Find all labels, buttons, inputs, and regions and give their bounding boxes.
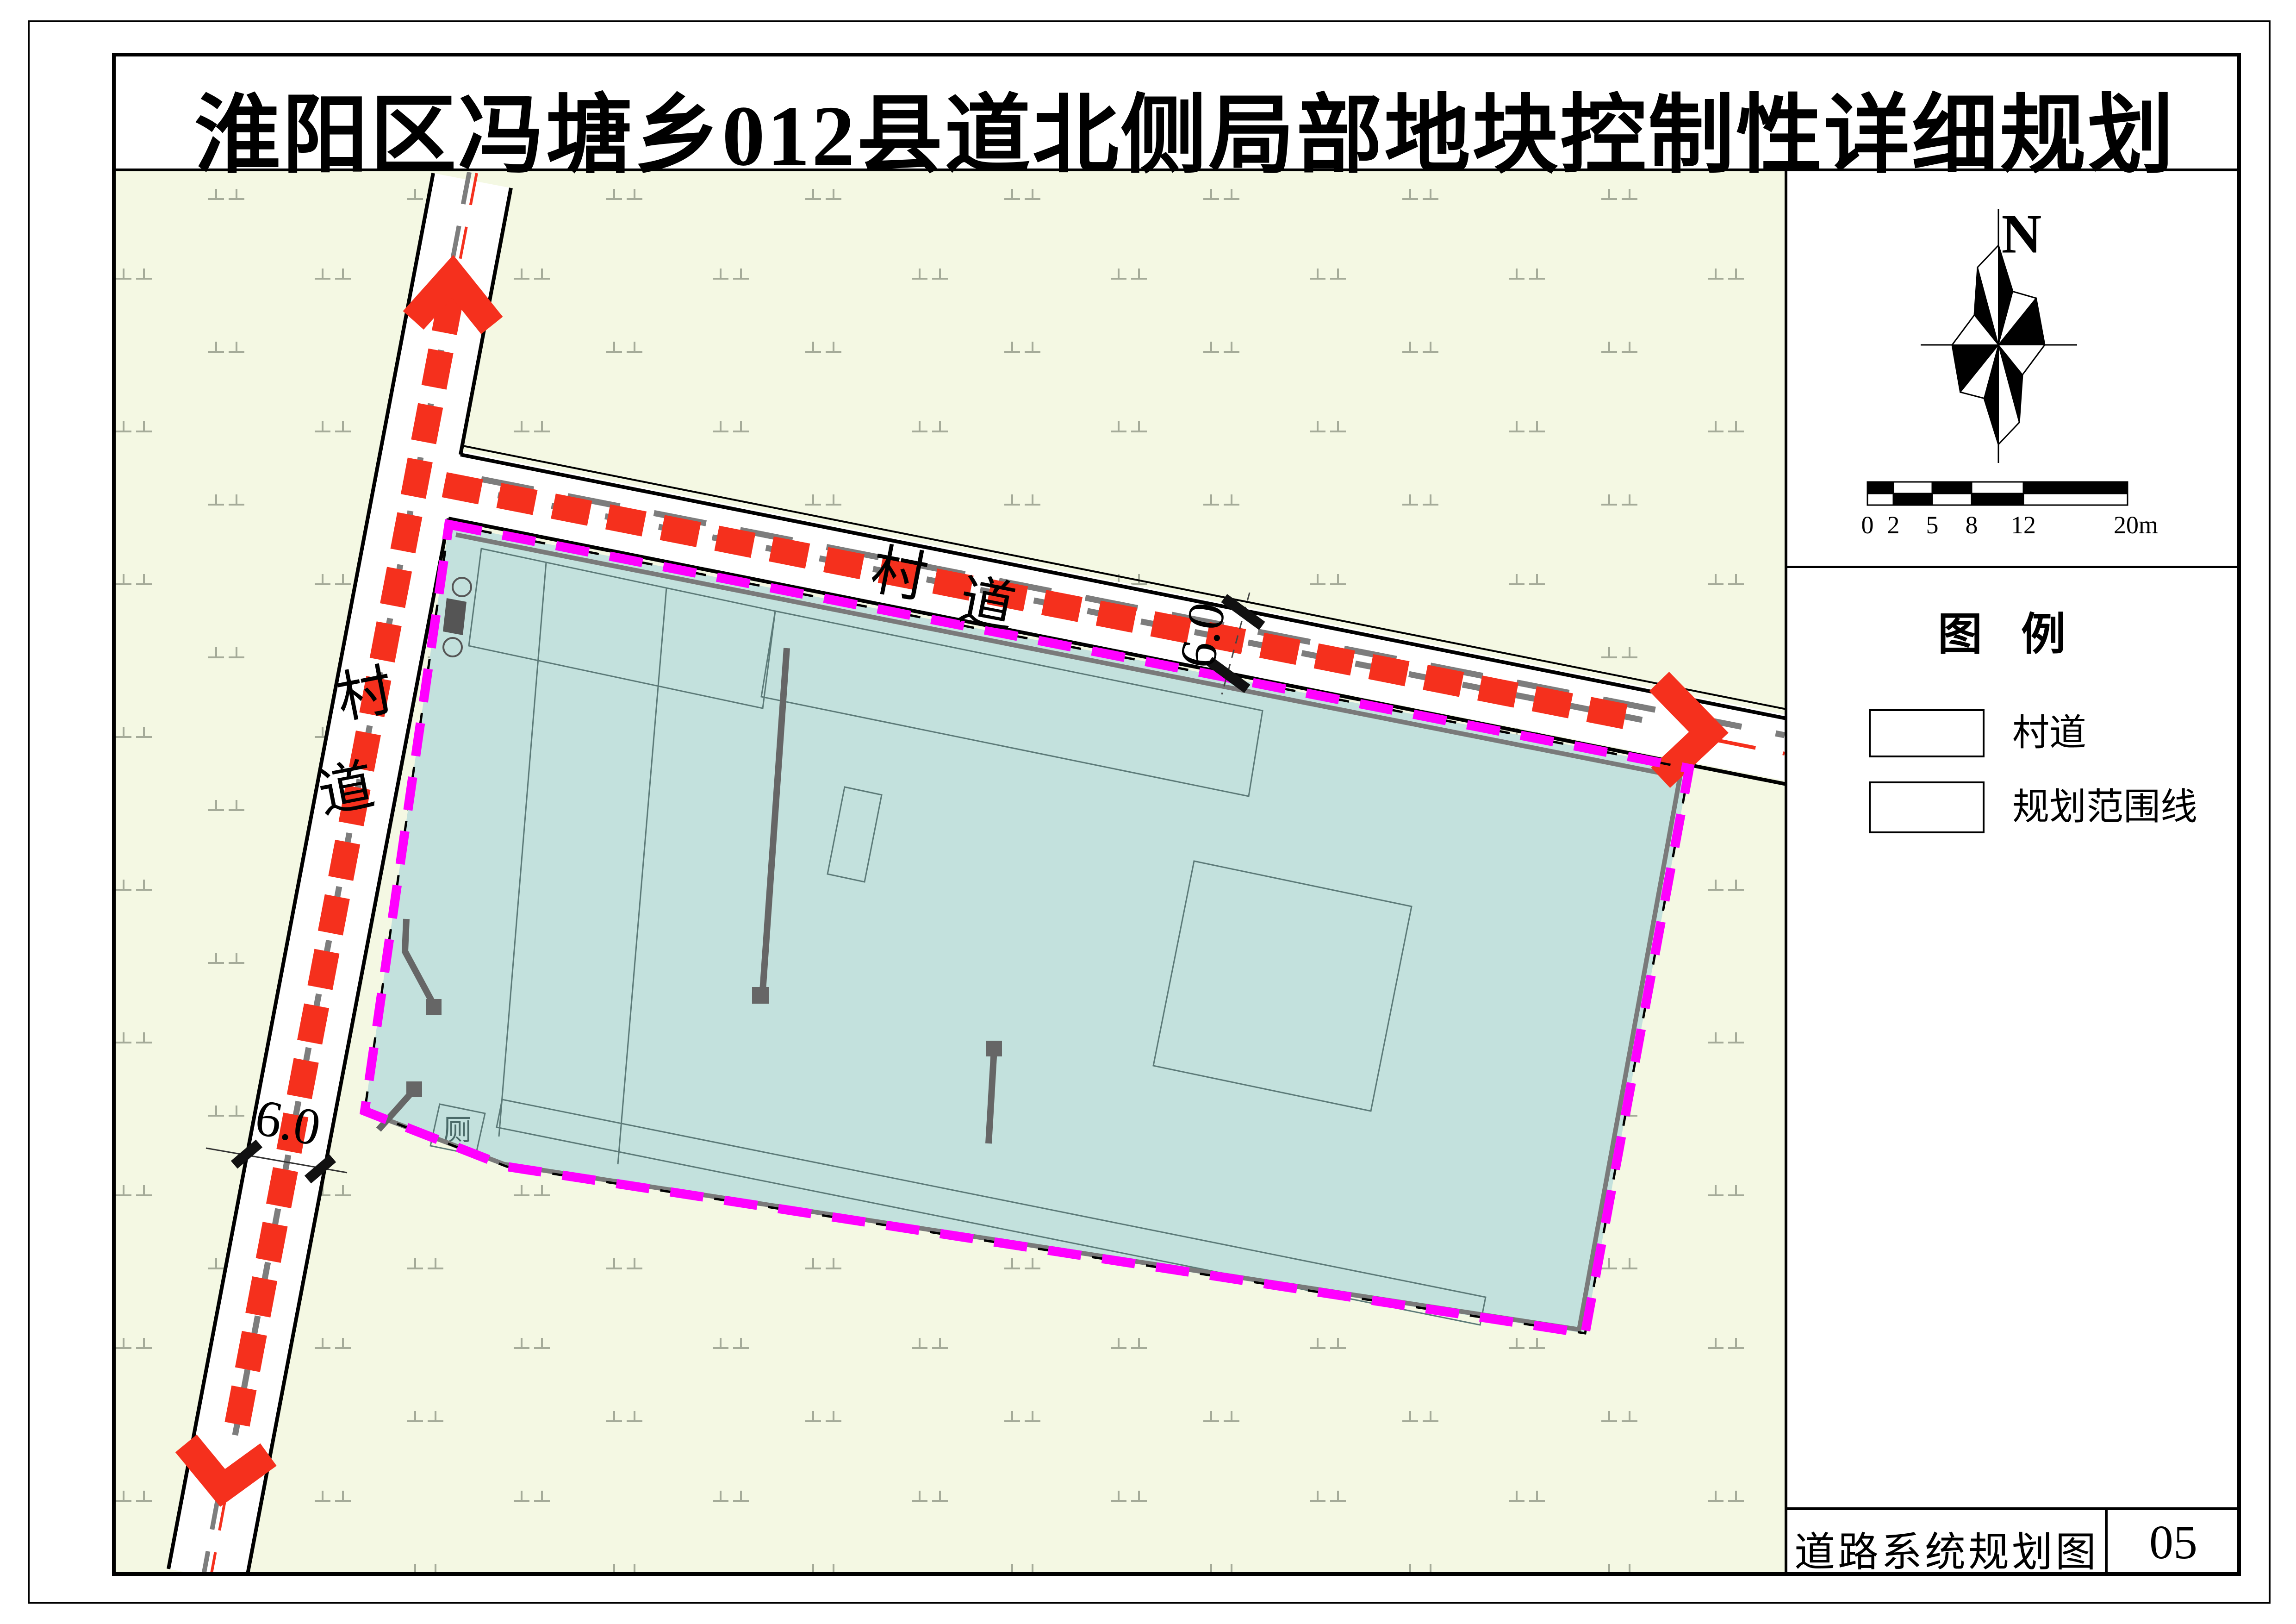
legend-symbol-box bbox=[1869, 781, 1985, 833]
sheet-number: 05 bbox=[2108, 1515, 2239, 1570]
legend-symbol-box bbox=[1869, 709, 1985, 757]
legend-item-label: 规划范围线 bbox=[2012, 783, 2197, 831]
page-title: 淮阳区冯塘乡012县道北侧局部地块控制性详细规划 bbox=[194, 65, 1842, 190]
sidebar-section-divider bbox=[1787, 566, 2239, 568]
planning-drawing-page: { "title": "淮阳区冯塘乡012县道北侧局部地块控制性详细规划", "… bbox=[0, 0, 2296, 1624]
drawing-name: 道路系统规划图 bbox=[1791, 1519, 2102, 1578]
legend-item-label: 村道 bbox=[2012, 709, 2086, 757]
sidebar-separator bbox=[1785, 171, 1787, 1573]
title-block-top-line bbox=[1787, 1507, 2239, 1510]
legend-heading: 图 例 bbox=[1833, 598, 2184, 662]
